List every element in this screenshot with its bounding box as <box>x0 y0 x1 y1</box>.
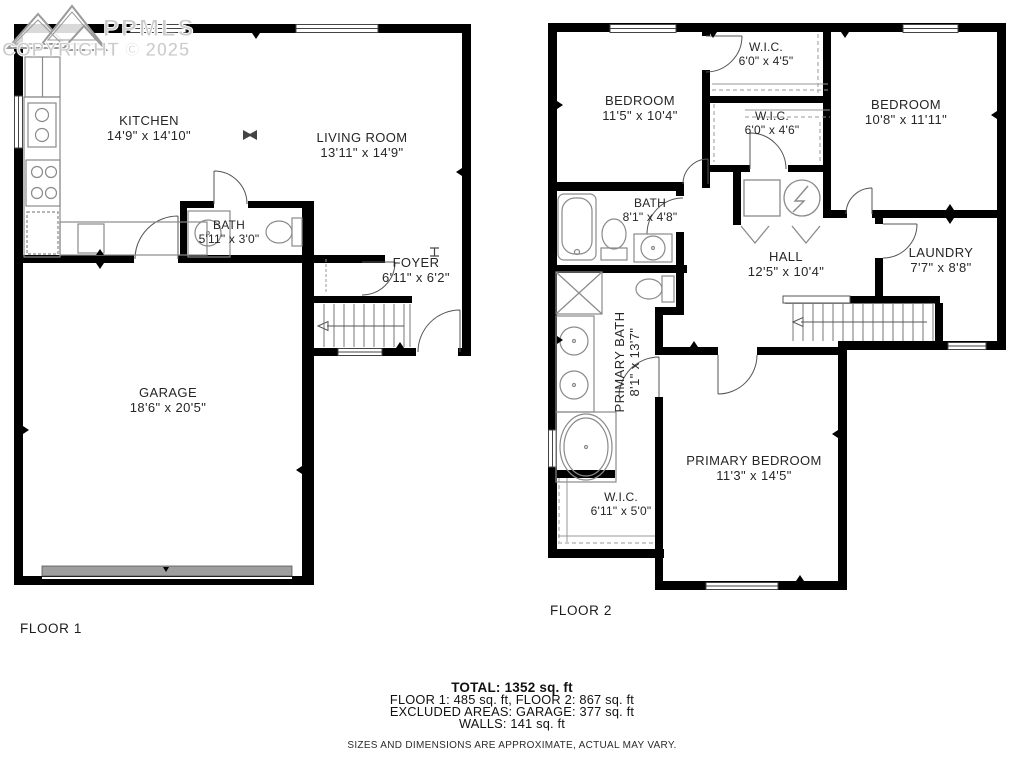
stair-railing <box>783 296 850 303</box>
room-dims: 6'11" x 6'2" <box>382 270 450 285</box>
room-name: PRIMARY BEDROOM <box>686 453 822 468</box>
room-dims: 6'11" x 5'0" <box>591 504 652 518</box>
sink-icon <box>28 103 56 147</box>
room-label-primary-bath: PRIMARY BATH 8'1" x 13'7" <box>612 312 642 413</box>
ceiling-fan-icon <box>243 130 257 140</box>
room-label-hall: HALL 12'5" x 10'4" <box>748 249 825 279</box>
furnace-icon <box>744 180 780 216</box>
double-vanity <box>556 316 594 412</box>
room-name: KITCHEN <box>119 113 179 128</box>
room-name: W.I.C. <box>755 109 789 123</box>
watermark: PPMLS COPYRIGHT © 2025 <box>2 6 196 61</box>
room-dims: 18'6" x 20'5" <box>130 400 207 415</box>
room-label-bedroom-a: BEDROOM 11'5" x 10'4" <box>602 93 678 123</box>
room-dims: 6'0" x 4'6" <box>745 123 800 137</box>
floor2-label: FLOOR 2 <box>550 603 612 618</box>
room-dims: 10'8" x 11'11" <box>865 112 947 127</box>
room-label-bath-1: BATH 5'11" x 3'0" <box>199 218 260 246</box>
shower-icon <box>556 272 602 314</box>
room-label-wic-a: W.I.C. 6'0" x 4'5" <box>739 40 794 68</box>
room-name: BATH <box>213 218 245 232</box>
floor1-plan <box>14 24 471 585</box>
room-dims: 6'0" x 4'5" <box>739 54 794 68</box>
watermark-brand: PPMLS <box>103 15 196 42</box>
room-name: GARAGE <box>139 385 197 400</box>
room-name: PRIMARY BATH <box>612 312 627 413</box>
floorplan-page: PPMLS COPYRIGHT © 2025 KITCHEN 14'9" x 1… <box>0 0 1024 767</box>
stove-icon <box>26 160 60 206</box>
room-name: BEDROOM <box>605 93 675 108</box>
room-name: W.I.C. <box>749 40 783 54</box>
louver-door <box>741 226 769 243</box>
area-summary: TOTAL: 1352 sq. ft FLOOR 1: 485 sq. ft, … <box>0 681 1024 751</box>
room-dims: 7'7" x 8'8" <box>909 260 974 275</box>
tub-icon <box>558 194 596 260</box>
kitchen-fixtures <box>24 57 207 257</box>
toilet-icon <box>601 219 627 260</box>
room-label-primary-bedroom: PRIMARY BEDROOM 11'3" x 14'5" <box>686 453 822 483</box>
toilet-icon <box>636 276 674 302</box>
room-label-wic-c: W.I.C. 6'11" x 5'0" <box>591 490 652 518</box>
dishwasher-icon <box>27 212 58 254</box>
water-heater-icon <box>784 180 820 216</box>
watermark-copyright: COPYRIGHT © 2025 <box>2 40 190 61</box>
room-name: LIVING ROOM <box>316 130 407 145</box>
room-dims: 8'1" x 13'7" <box>627 312 642 413</box>
floor1-windows <box>15 25 383 356</box>
room-label-bedroom-b: BEDROOM 10'8" x 11'11" <box>865 97 947 127</box>
room-name: W.I.C. <box>604 490 638 504</box>
room-label-foyer: FOYER 6'11" x 6'2" <box>382 255 450 285</box>
toilet-icon <box>266 218 302 246</box>
room-dims: 14'9" x 14'10" <box>107 128 191 143</box>
louver-door <box>792 226 820 243</box>
garage-door <box>42 566 292 578</box>
room-label-garage: GARAGE 18'6" x 20'5" <box>130 385 207 415</box>
room-name: BEDROOM <box>871 97 941 112</box>
floor1-walls <box>14 24 471 585</box>
room-name: HALL <box>769 249 803 264</box>
room-dims: 11'5" x 10'4" <box>602 108 678 123</box>
room-label-living-room: LIVING ROOM 13'11" x 14'9" <box>316 130 407 160</box>
mechanical-closet <box>741 180 820 243</box>
room-label-bath-2: BATH 8'1" x 4'8" <box>623 196 678 224</box>
room-name: LAUNDRY <box>909 245 974 260</box>
room-label-wic-b: W.I.C. 6'0" x 4'6" <box>745 109 800 137</box>
room-name: FOYER <box>393 255 440 270</box>
floor1-label: FLOOR 1 <box>20 621 82 636</box>
room-dims: 8'1" x 4'8" <box>623 210 678 224</box>
room-label-laundry: LAUNDRY 7'7" x 8'8" <box>909 245 974 275</box>
summary-disclaimer: SIZES AND DIMENSIONS ARE APPROXIMATE, AC… <box>0 740 1024 751</box>
sink-icon <box>634 234 672 262</box>
room-label-kitchen: KITCHEN 14'9" x 14'10" <box>107 113 191 143</box>
room-dims: 11'3" x 14'5" <box>686 468 822 483</box>
summary-walls: WALLS: 141 sq. ft <box>0 718 1024 730</box>
room-dims: 12'5" x 10'4" <box>748 264 825 279</box>
room-dims: 13'11" x 14'9" <box>316 145 407 160</box>
room-name: BATH <box>634 196 666 210</box>
room-dims: 5'11" x 3'0" <box>199 232 260 246</box>
